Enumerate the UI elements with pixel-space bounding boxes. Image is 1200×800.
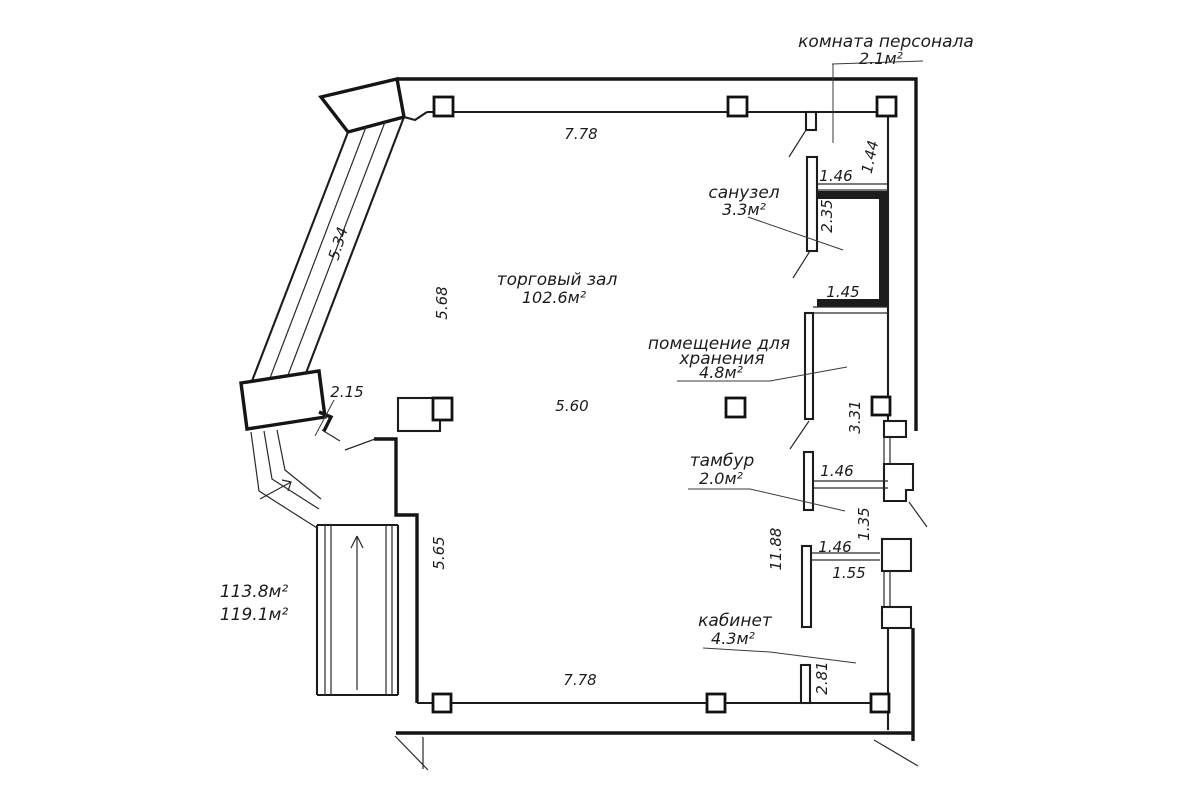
dim-vest-width-top: 1.46 bbox=[820, 462, 853, 480]
vestibule-wall-stub-2 bbox=[802, 546, 811, 627]
vestibule-wall-stub-1 bbox=[804, 452, 813, 510]
column bbox=[707, 694, 725, 712]
dim-staff-width: 1.46 bbox=[819, 167, 852, 185]
dim-porch: 2.15 bbox=[330, 383, 363, 401]
staff-door-stub bbox=[806, 112, 816, 130]
column bbox=[726, 398, 745, 417]
column bbox=[433, 398, 452, 420]
bathroom-left-wall-stub bbox=[807, 157, 817, 251]
room-label-vestibule: тамбур bbox=[690, 451, 755, 471]
total-area-2: 119.1м² bbox=[220, 605, 288, 625]
bathroom-wall-right-poche bbox=[879, 191, 888, 307]
dim-vest-gap: 1.35 bbox=[855, 507, 873, 540]
dim-office-width: 1.55 bbox=[832, 564, 865, 582]
drawing-background bbox=[0, 0, 1200, 800]
column bbox=[872, 397, 890, 415]
dim-left-upper: 5.68 bbox=[433, 286, 451, 319]
dim-bath-width: 1.45 bbox=[826, 283, 859, 301]
office-wall-stub bbox=[801, 665, 810, 703]
floor-plan-page: комната персонала 2.1м² санузел 3.3м² то… bbox=[0, 0, 1200, 800]
dim-hall-center: 5.60 bbox=[555, 397, 588, 415]
pier-3 bbox=[882, 539, 911, 571]
room-area-storage: 4.8м² bbox=[699, 363, 744, 382]
porch-block bbox=[241, 371, 325, 429]
dim-right-side-height: 11.88 bbox=[767, 528, 785, 571]
total-area-1: 113.8м² bbox=[220, 582, 288, 602]
dim-bottom-width: 7.78 bbox=[563, 671, 596, 689]
column bbox=[877, 97, 896, 116]
pier-1 bbox=[884, 421, 906, 437]
room-label-hall: торговый зал bbox=[497, 270, 618, 290]
column bbox=[728, 97, 747, 116]
dim-vest-width-bottom: 1.46 bbox=[818, 538, 851, 556]
floor-plan-drawing: комната персонала 2.1м² санузел 3.3м² то… bbox=[0, 0, 1200, 800]
column bbox=[433, 694, 451, 712]
room-area-hall: 102.6м² bbox=[522, 288, 587, 307]
dim-storage-height: 3.31 bbox=[846, 400, 864, 433]
dim-top-width: 7.78 bbox=[564, 125, 597, 143]
pier-4 bbox=[882, 607, 911, 628]
bathroom-wall-top-poche bbox=[817, 191, 888, 199]
storage-left-wall-stub bbox=[805, 313, 813, 419]
room-label-office: кабинет bbox=[698, 611, 773, 631]
dim-left-lower: 5.65 bbox=[430, 536, 448, 569]
room-area-vestibule: 2.0м² bbox=[699, 469, 744, 488]
column bbox=[434, 97, 453, 116]
dim-office-height: 2.81 bbox=[813, 661, 831, 694]
dim-bath-height: 2.35 bbox=[818, 199, 836, 232]
room-area-bathroom: 3.3м² bbox=[722, 200, 767, 219]
room-area-staff: 2.1м² bbox=[859, 49, 904, 68]
room-area-office: 4.3м² bbox=[711, 629, 756, 648]
column bbox=[871, 694, 889, 712]
